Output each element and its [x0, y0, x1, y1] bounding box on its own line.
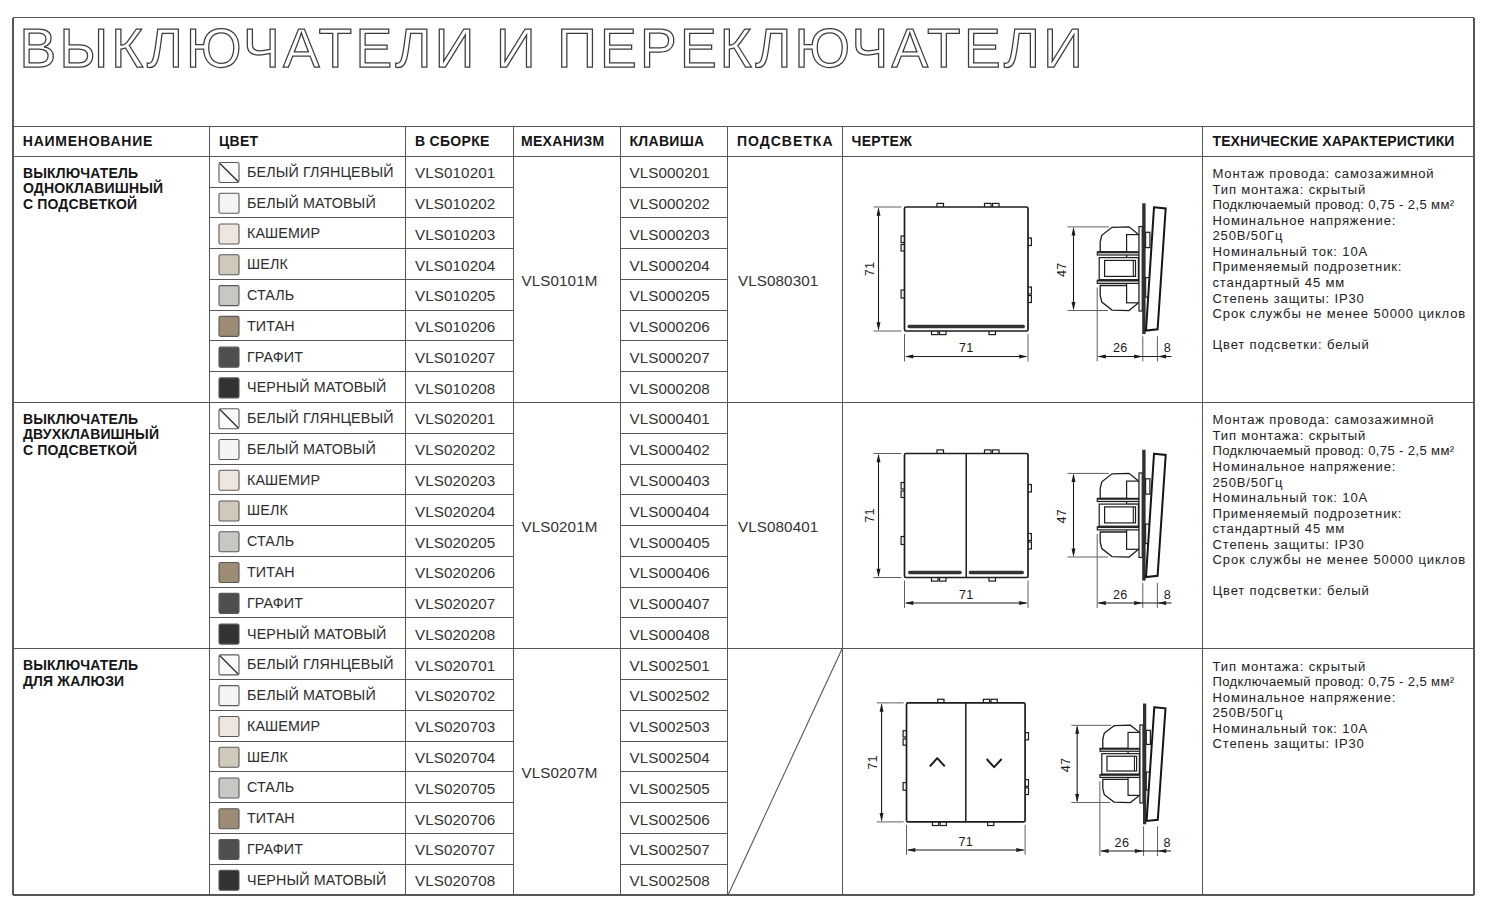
svg-text:С ПОДСВЕТКОЙ: С ПОДСВЕТКОЙ — [23, 195, 137, 212]
svg-text:VLS002501: VLS002501 — [630, 657, 710, 674]
svg-text:250В/50Гц: 250В/50Гц — [1213, 475, 1284, 490]
svg-text:Номинальное напряжение:: Номинальное напряжение: — [1213, 213, 1397, 228]
svg-text:Подключаемый провод: 0,75 - 2,: Подключаемый провод: 0,75 - 2,5 мм² — [1213, 197, 1455, 212]
svg-text:VLS002507: VLS002507 — [630, 841, 710, 858]
svg-text:ГРАФИТ: ГРАФИТ — [247, 595, 303, 611]
svg-text:Степень защиты: IP30: Степень защиты: IP30 — [1213, 537, 1365, 552]
svg-text:ТЕХНИЧЕСКИЕ ХАРАКТЕРИСТИКИ: ТЕХНИЧЕСКИЕ ХАРАКТЕРИСТИКИ — [1213, 133, 1455, 149]
svg-text:ЧЕРНЫЙ МАТОВЫЙ: ЧЕРНЫЙ МАТОВЫЙ — [247, 378, 387, 395]
svg-text:Монтаж провода: самозажимной: Монтаж провода: самозажимной — [1213, 412, 1435, 427]
svg-text:VLS020202: VLS020202 — [415, 441, 495, 458]
svg-text:Номинальное напряжение:: Номинальное напряжение: — [1213, 690, 1397, 705]
svg-text:БЕЛЫЙ ГЛЯНЦЕВЫЙ: БЕЛЫЙ ГЛЯНЦЕВЫЙ — [247, 163, 394, 180]
svg-text:СТАЛЬ: СТАЛЬ — [247, 287, 294, 303]
svg-text:VLS020205: VLS020205 — [415, 534, 495, 551]
svg-text:VLS020704: VLS020704 — [415, 749, 495, 766]
svg-text:VLS000404: VLS000404 — [630, 503, 710, 520]
svg-text:47: 47 — [1055, 262, 1069, 277]
svg-text:БЕЛЫЙ МАТОВЫЙ: БЕЛЫЙ МАТОВЫЙ — [247, 194, 376, 211]
svg-text:ДВУХКЛАВИШНЫЙ: ДВУХКЛАВИШНЫЙ — [23, 425, 159, 442]
svg-text:В СБОРКЕ: В СБОРКЕ — [415, 133, 490, 149]
svg-text:Тип монтажа: скрытый: Тип монтажа: скрытый — [1213, 659, 1367, 674]
svg-text:VLS020206: VLS020206 — [415, 564, 495, 581]
svg-text:Степень защиты: IP30: Степень защиты: IP30 — [1213, 291, 1365, 306]
svg-text:КАШЕМИР: КАШЕМИР — [247, 472, 320, 488]
svg-text:VLS000206: VLS000206 — [630, 318, 710, 335]
svg-text:250В/50Гц: 250В/50Гц — [1213, 228, 1284, 243]
svg-text:СТАЛЬ: СТАЛЬ — [247, 533, 294, 549]
svg-text:VLS010201: VLS010201 — [415, 164, 495, 181]
svg-text:VLS0101M: VLS0101M — [522, 272, 598, 289]
svg-text:VLS020208: VLS020208 — [415, 626, 495, 643]
svg-text:VLS020707: VLS020707 — [415, 841, 495, 858]
svg-text:47: 47 — [1059, 758, 1073, 773]
svg-text:VLS002502: VLS002502 — [630, 687, 710, 704]
svg-text:ЧЕРНЫЙ МАТОВЫЙ: ЧЕРНЫЙ МАТОВЫЙ — [247, 871, 387, 888]
svg-text:Номинальный ток: 10А: Номинальный ток: 10А — [1213, 490, 1369, 505]
svg-text:ВЫКЛЮЧАТЕЛИ И ПЕРЕКЛЮЧАТЕЛИ: ВЫКЛЮЧАТЕЛИ И ПЕРЕКЛЮЧАТЕЛИ — [20, 17, 1086, 79]
svg-text:КАШЕМИР: КАШЕМИР — [247, 225, 320, 241]
svg-text:VLS000401: VLS000401 — [630, 410, 710, 427]
svg-text:ЧЕРНЫЙ МАТОВЫЙ: ЧЕРНЫЙ МАТОВЫЙ — [247, 625, 387, 642]
svg-text:С ПОДСВЕТКОЙ: С ПОДСВЕТКОЙ — [23, 441, 137, 458]
svg-text:Цвет подсветки: белый: Цвет подсветки: белый — [1213, 583, 1370, 598]
svg-text:VLS000201: VLS000201 — [630, 164, 710, 181]
svg-text:VLS000407: VLS000407 — [630, 595, 710, 612]
svg-text:ШЕЛК: ШЕЛК — [247, 749, 288, 765]
svg-text:71: 71 — [866, 755, 880, 770]
svg-text:VLS002504: VLS002504 — [630, 749, 710, 766]
svg-text:Цвет подсветки: белый: Цвет подсветки: белый — [1213, 337, 1370, 352]
svg-text:VLS020708: VLS020708 — [415, 872, 495, 889]
svg-text:8: 8 — [1164, 836, 1171, 850]
svg-text:VLS002506: VLS002506 — [630, 811, 710, 828]
svg-text:VLS020703: VLS020703 — [415, 718, 495, 735]
svg-text:ТИТАН: ТИТАН — [247, 564, 295, 580]
svg-text:VLS020204: VLS020204 — [415, 503, 495, 520]
svg-text:VLS0207M: VLS0207M — [522, 764, 598, 781]
svg-text:VLS000205: VLS000205 — [630, 287, 710, 304]
svg-text:ВЫКЛЮЧАТЕЛЬ: ВЫКЛЮЧАТЕЛЬ — [23, 411, 138, 427]
svg-text:ВЫКЛЮЧАТЕЛЬ: ВЫКЛЮЧАТЕЛЬ — [23, 657, 138, 673]
svg-text:Срок службы не менее 50000 цик: Срок службы не менее 50000 циклов — [1213, 306, 1467, 321]
svg-text:ВЫКЛЮЧАТЕЛЬ: ВЫКЛЮЧАТЕЛЬ — [23, 165, 138, 181]
svg-text:БЕЛЫЙ МАТОВЫЙ: БЕЛЫЙ МАТОВЫЙ — [247, 440, 376, 457]
svg-text:VLS000208: VLS000208 — [630, 380, 710, 397]
svg-text:71: 71 — [863, 262, 877, 277]
svg-text:VLS000403: VLS000403 — [630, 472, 710, 489]
svg-text:VLS010205: VLS010205 — [415, 287, 495, 304]
svg-text:VLS020207: VLS020207 — [415, 595, 495, 612]
svg-text:Подключаемый провод: 0,75 - 2,: Подключаемый провод: 0,75 - 2,5 мм² — [1213, 674, 1455, 689]
svg-text:стандартный 45 мм: стандартный 45 мм — [1213, 521, 1346, 536]
svg-text:VLS000204: VLS000204 — [630, 257, 710, 274]
svg-text:VLS0201M: VLS0201M — [522, 518, 598, 535]
svg-text:VLS000405: VLS000405 — [630, 534, 710, 551]
svg-text:Номинальный ток: 10А: Номинальный ток: 10А — [1213, 721, 1369, 736]
svg-text:VLS010204: VLS010204 — [415, 257, 495, 274]
svg-text:VLS000402: VLS000402 — [630, 441, 710, 458]
svg-text:VLS010208: VLS010208 — [415, 380, 495, 397]
svg-text:Применяемый подрозетник:: Применяемый подрозетник: — [1213, 259, 1403, 274]
svg-text:КАШЕМИР: КАШЕМИР — [247, 718, 320, 734]
svg-text:VLS000203: VLS000203 — [630, 226, 710, 243]
svg-text:ЧЕРТЕЖ: ЧЕРТЕЖ — [852, 133, 913, 149]
svg-text:Номинальный ток: 10А: Номинальный ток: 10А — [1213, 244, 1369, 259]
svg-text:Подключаемый провод: 0,75 - 2,: Подключаемый провод: 0,75 - 2,5 мм² — [1213, 443, 1455, 458]
svg-text:VLS010202: VLS010202 — [415, 195, 495, 212]
svg-text:VLS020705: VLS020705 — [415, 780, 495, 797]
svg-text:VLS010203: VLS010203 — [415, 226, 495, 243]
svg-text:Монтаж провода: самозажимной: Монтаж провода: самозажимной — [1213, 166, 1435, 181]
svg-text:КЛАВИША: КЛАВИША — [630, 133, 705, 149]
svg-text:71: 71 — [959, 341, 974, 355]
svg-text:71: 71 — [863, 508, 877, 523]
svg-text:VLS002505: VLS002505 — [630, 780, 710, 797]
svg-text:VLS010206: VLS010206 — [415, 318, 495, 335]
svg-text:ТИТАН: ТИТАН — [247, 318, 295, 334]
svg-text:Срок службы не менее 50000 цик: Срок службы не менее 50000 циклов — [1213, 552, 1467, 567]
svg-text:Номинальное напряжение:: Номинальное напряжение: — [1213, 459, 1397, 474]
svg-text:ГРАФИТ: ГРАФИТ — [247, 841, 303, 857]
svg-text:VLS020203: VLS020203 — [415, 472, 495, 489]
svg-text:26: 26 — [1115, 836, 1130, 850]
svg-text:VLS080401: VLS080401 — [738, 518, 818, 535]
svg-text:стандартный 45 мм: стандартный 45 мм — [1213, 275, 1346, 290]
svg-text:VLS020706: VLS020706 — [415, 811, 495, 828]
svg-text:БЕЛЫЙ МАТОВЫЙ: БЕЛЫЙ МАТОВЫЙ — [247, 686, 376, 703]
svg-text:Применяемый подрозетник:: Применяемый подрозетник: — [1213, 506, 1403, 521]
svg-text:ШЕЛК: ШЕЛК — [247, 502, 288, 518]
svg-text:VLS020201: VLS020201 — [415, 410, 495, 427]
svg-text:НАИМЕНОВАНИЕ: НАИМЕНОВАНИЕ — [23, 133, 153, 149]
svg-text:ОДНОКЛАВИШНЫЙ: ОДНОКЛАВИШНЫЙ — [23, 179, 163, 196]
svg-text:БЕЛЫЙ ГЛЯНЦЕВЫЙ: БЕЛЫЙ ГЛЯНЦЕВЫЙ — [247, 655, 394, 672]
svg-text:Степень защиты: IP30: Степень защиты: IP30 — [1213, 736, 1365, 751]
svg-text:8: 8 — [1164, 588, 1171, 602]
svg-text:26: 26 — [1113, 341, 1128, 355]
svg-text:ЦВЕТ: ЦВЕТ — [219, 133, 259, 149]
svg-text:ПОДСВЕТКА: ПОДСВЕТКА — [737, 133, 834, 149]
svg-text:VLS010207: VLS010207 — [415, 349, 495, 366]
svg-text:Тип монтажа: скрытый: Тип монтажа: скрытый — [1213, 428, 1367, 443]
svg-text:VLS002503: VLS002503 — [630, 718, 710, 735]
svg-text:ДЛЯ ЖАЛЮЗИ: ДЛЯ ЖАЛЮЗИ — [23, 673, 124, 689]
svg-text:VLS020702: VLS020702 — [415, 687, 495, 704]
svg-text:ГРАФИТ: ГРАФИТ — [247, 349, 303, 365]
svg-text:ШЕЛК: ШЕЛК — [247, 256, 288, 272]
svg-text:VLS000207: VLS000207 — [630, 349, 710, 366]
svg-text:VLS000406: VLS000406 — [630, 564, 710, 581]
svg-text:Тип монтажа: скрытый: Тип монтажа: скрытый — [1213, 182, 1367, 197]
svg-text:26: 26 — [1113, 588, 1128, 602]
svg-text:8: 8 — [1164, 341, 1171, 355]
svg-text:VLS002508: VLS002508 — [630, 872, 710, 889]
svg-text:МЕХАНИЗМ: МЕХАНИЗМ — [521, 133, 604, 149]
svg-text:47: 47 — [1055, 509, 1069, 524]
svg-text:VLS000202: VLS000202 — [630, 195, 710, 212]
svg-text:СТАЛЬ: СТАЛЬ — [247, 779, 294, 795]
svg-text:БЕЛЫЙ ГЛЯНЦЕВЫЙ: БЕЛЫЙ ГЛЯНЦЕВЫЙ — [247, 409, 394, 426]
svg-text:71: 71 — [958, 835, 973, 849]
svg-text:71: 71 — [959, 588, 974, 602]
svg-text:VLS000408: VLS000408 — [630, 626, 710, 643]
svg-text:ТИТАН: ТИТАН — [247, 810, 295, 826]
svg-text:VLS080301: VLS080301 — [738, 272, 818, 289]
svg-text:250В/50Гц: 250В/50Гц — [1213, 705, 1284, 720]
svg-text:VLS020701: VLS020701 — [415, 657, 495, 674]
